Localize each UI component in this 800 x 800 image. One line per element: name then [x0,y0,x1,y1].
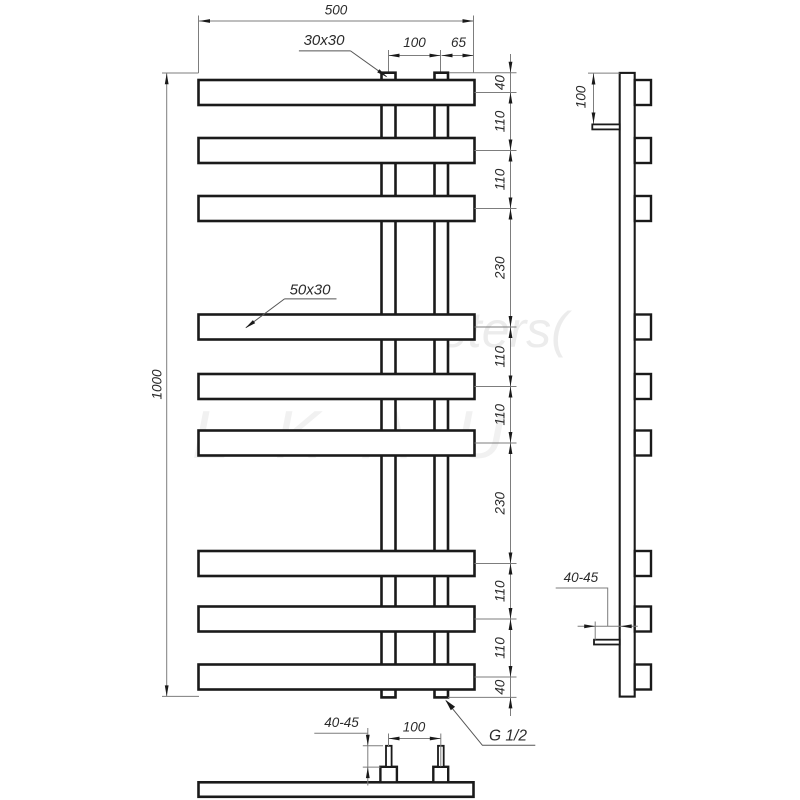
svg-text:40: 40 [493,75,508,91]
svg-text:30x30: 30x30 [304,32,346,49]
svg-text:40-45: 40-45 [324,715,359,730]
svg-text:230: 230 [493,256,508,280]
svg-text:230: 230 [493,491,508,515]
svg-text:G 1/2: G 1/2 [489,728,527,745]
svg-text:110: 110 [493,345,508,367]
svg-text:100: 100 [403,720,426,735]
svg-text:110: 110 [493,110,508,132]
svg-text:110: 110 [493,580,508,602]
svg-text:40: 40 [493,679,508,695]
svg-text:40-45: 40-45 [564,570,599,585]
svg-text:110: 110 [493,403,508,425]
svg-text:110: 110 [493,637,508,659]
svg-text:100: 100 [574,85,589,108]
svg-text:100: 100 [403,35,426,50]
svg-text:65: 65 [451,35,467,50]
svg-text:1000: 1000 [150,369,165,400]
svg-text:50x30: 50x30 [290,282,332,299]
svg-text:110: 110 [493,168,508,190]
svg-text:500: 500 [325,3,348,18]
